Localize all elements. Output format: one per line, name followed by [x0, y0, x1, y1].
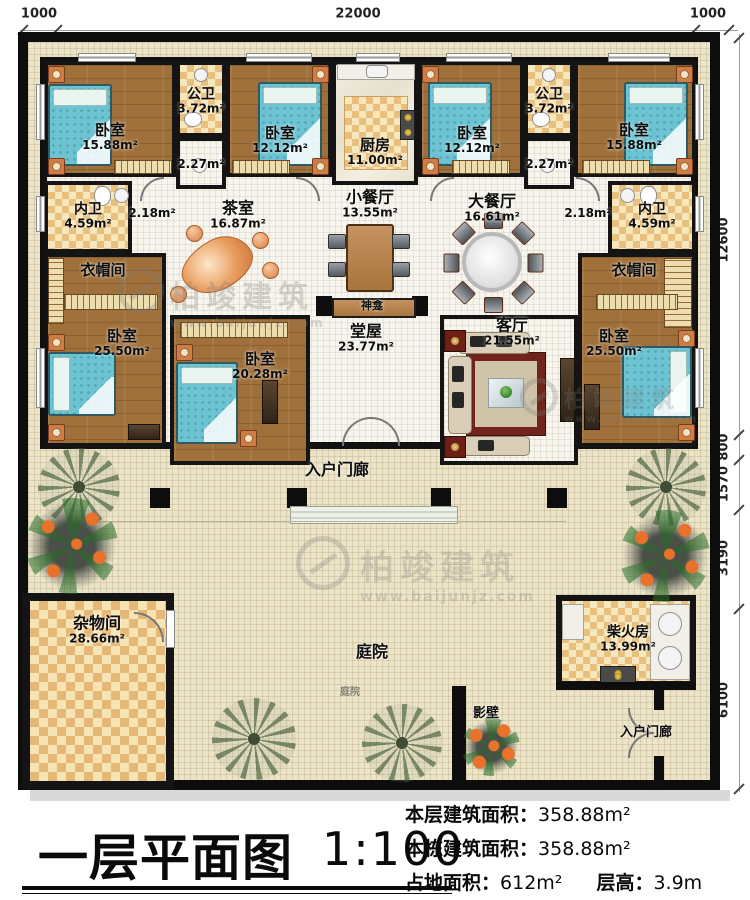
- storage-door-gap: [166, 610, 175, 648]
- wardrobe: [452, 160, 510, 174]
- window: [36, 196, 45, 232]
- sofa-cushion: [452, 366, 464, 382]
- watermark-logo: [520, 378, 558, 416]
- chair: [484, 297, 503, 313]
- room-label-porch: 入户门廊: [305, 461, 369, 479]
- screen-wall: [452, 686, 466, 780]
- title-underline: [22, 886, 452, 890]
- dimension-line-top: [20, 30, 738, 31]
- bath-sink: [620, 188, 635, 203]
- nightstand: [48, 424, 65, 441]
- dining-table-round: [462, 232, 522, 292]
- porch-se-top-wall: [556, 682, 696, 690]
- nightstand: [312, 66, 329, 83]
- floor-plan-canvas: 1000 22000 1000 12600 800 1570 3190 6100: [0, 0, 750, 900]
- tv-cabinet: [128, 424, 160, 440]
- room-label: 小餐厅 13.55m²: [342, 189, 398, 220]
- room-label: 卧室 25.50m²: [94, 328, 150, 358]
- window: [356, 53, 400, 62]
- dim-top-right: 1000: [687, 7, 729, 22]
- room-label-shrine: 神龛: [361, 300, 383, 312]
- nightstand: [48, 66, 65, 83]
- info-line-2: 本栋建筑面积：358.88m²: [405, 834, 631, 861]
- room-label: 衣帽间: [80, 261, 125, 279]
- side-table: [444, 436, 466, 458]
- basin: [658, 646, 682, 670]
- room-label: 卧室 12.12m²: [252, 125, 308, 155]
- tea-stool: [252, 232, 269, 249]
- wardrobe: [582, 160, 650, 174]
- porch-column: [150, 488, 170, 508]
- room-label: 卧室 12.12m²: [444, 125, 500, 155]
- window: [446, 53, 512, 62]
- nightstand: [48, 158, 65, 175]
- watermark-brand: 柏竣建筑: [170, 272, 325, 316]
- wardrobe: [232, 160, 290, 174]
- wardrobe: [48, 258, 64, 324]
- wardrobe: [596, 294, 678, 310]
- palm-plant: [362, 704, 442, 782]
- tv-cabinet: [262, 380, 278, 424]
- room-label: 卧室 25.50m²: [586, 328, 642, 358]
- room-label: 茶室 16.87m²: [210, 200, 266, 231]
- dim-top-left: 1000: [18, 7, 60, 22]
- room-label: 客厅 21.55m²: [484, 317, 540, 348]
- bed: [48, 352, 116, 416]
- chair: [328, 262, 346, 277]
- chair: [444, 254, 460, 273]
- room-label: 卧室 15.88m²: [82, 122, 138, 152]
- watermark-brand: 柏竣建筑: [360, 540, 535, 589]
- watermark-url: www.baijunjz.com: [360, 589, 535, 605]
- tea-stool: [186, 225, 203, 242]
- dimension-line-right: [739, 34, 740, 792]
- porch-edge-line: [86, 521, 566, 522]
- kitchen-sink: [366, 65, 388, 78]
- watermark-logo: [296, 536, 350, 590]
- porch-column: [287, 488, 307, 508]
- room-label: 堂屋 23.77m²: [338, 323, 394, 354]
- porch-column: [547, 488, 567, 508]
- room-label: 2.18m²: [564, 203, 611, 221]
- room-label: 2.18m²: [128, 203, 175, 221]
- nightstand: [240, 430, 257, 447]
- sofa: [458, 436, 530, 456]
- porch-se-wall-stub: [654, 756, 664, 786]
- nightstand: [678, 330, 695, 347]
- basin: [658, 612, 682, 636]
- potted-plant: [500, 386, 512, 398]
- room-label: 2.27m²: [177, 154, 224, 172]
- orange-plant: [26, 498, 118, 594]
- wardrobe: [114, 160, 172, 174]
- dining-table-small: [346, 224, 394, 292]
- room-label-courtyard-faint: 庭院: [340, 681, 360, 699]
- room-label: 2.27m²: [525, 154, 572, 172]
- chair: [528, 254, 544, 273]
- palm-plant: [212, 698, 296, 780]
- nightstand: [422, 66, 439, 83]
- nightstand: [422, 158, 439, 175]
- title-underline-thin: [22, 893, 452, 894]
- room-label-screen-wall: 影壁: [473, 703, 499, 721]
- room-label: 杂物间 28.66m²: [69, 615, 125, 646]
- nightstand: [678, 424, 695, 441]
- kitchen-stove: [400, 110, 415, 140]
- watermark-url: www.baijunjz.com: [170, 316, 325, 330]
- window: [695, 196, 704, 232]
- chair: [392, 262, 410, 277]
- room-label: 卧室 15.88m²: [606, 122, 662, 152]
- window: [608, 53, 670, 62]
- watermark-brand: 柏竣建筑: [564, 380, 698, 414]
- wardrobe: [664, 258, 692, 328]
- watermark: 柏竣建筑 www.baijunjz.com: [564, 380, 698, 425]
- room-label-porch-se: 入户门廊: [620, 722, 672, 740]
- info-line-3: 占地面积：612m² 层高：3.9m: [405, 868, 702, 895]
- orange-plant: [462, 718, 520, 776]
- room-label: 衣帽间: [611, 261, 656, 279]
- room-label: 公卫 3.72m²: [525, 88, 572, 117]
- window: [246, 53, 312, 62]
- room-label: 卧室 20.28m²: [232, 351, 288, 381]
- nightstand: [312, 158, 329, 175]
- room-label: 厨房 11.00m²: [347, 137, 403, 167]
- orange-plant: [620, 510, 710, 602]
- chair: [328, 234, 346, 249]
- porch-se-wall-stub: [654, 686, 664, 710]
- room-label: 内卫 4.59m²: [628, 203, 675, 232]
- nightstand: [676, 66, 693, 83]
- window: [78, 53, 136, 62]
- info-line-1: 本层建筑面积：358.88m²: [405, 800, 631, 827]
- bath-sink: [114, 188, 129, 203]
- window: [36, 84, 45, 140]
- drawing-title: 一层平面图: [38, 818, 293, 890]
- watermark-url: www.baijunjz.com: [564, 414, 698, 425]
- nightstand: [176, 344, 193, 361]
- watermark: 柏竣建筑 www.baijunjz.com: [360, 540, 535, 605]
- side-table: [444, 330, 466, 352]
- dim-top-center: 22000: [332, 7, 383, 22]
- watermark: 柏竣建筑 www.baijunjz.com: [170, 272, 325, 330]
- room-label: 柴火房 13.99m²: [600, 626, 656, 655]
- nightstand: [676, 158, 693, 175]
- chair: [392, 234, 410, 249]
- room-label-courtyard: 庭院: [356, 643, 388, 661]
- window: [695, 84, 704, 140]
- bath-sink: [194, 68, 208, 82]
- window: [36, 348, 45, 408]
- sofa-cushion: [452, 392, 464, 408]
- room-label: 内卫 4.59m²: [64, 203, 111, 232]
- nightstand: [48, 334, 65, 351]
- bath-sink: [542, 68, 556, 82]
- porch-column: [431, 488, 451, 508]
- firewood-sink-counter: [562, 604, 584, 640]
- room-label: 大餐厅 16.61m²: [464, 193, 520, 224]
- bed: [176, 362, 238, 444]
- room-label: 公卫 3.72m²: [177, 88, 224, 117]
- sofa-cushion: [478, 440, 494, 451]
